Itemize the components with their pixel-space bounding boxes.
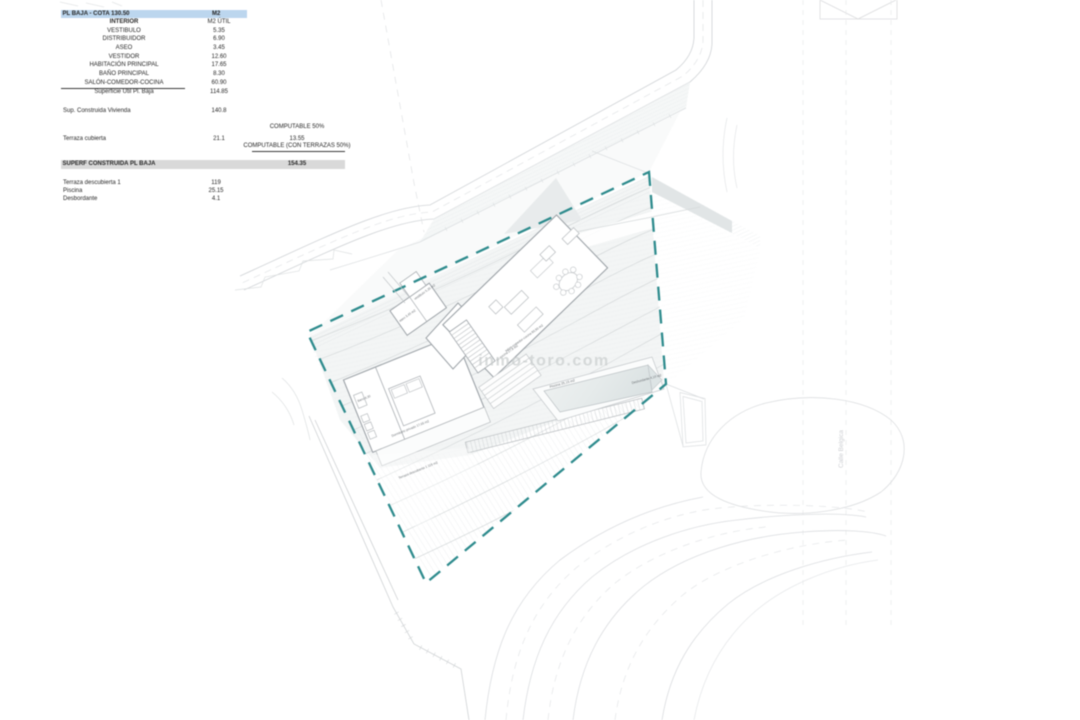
svg-text:inmo-toro.com: inmo-toro.com	[478, 353, 610, 370]
svg-text:Calle Belgica: Calle Belgica	[838, 430, 845, 468]
